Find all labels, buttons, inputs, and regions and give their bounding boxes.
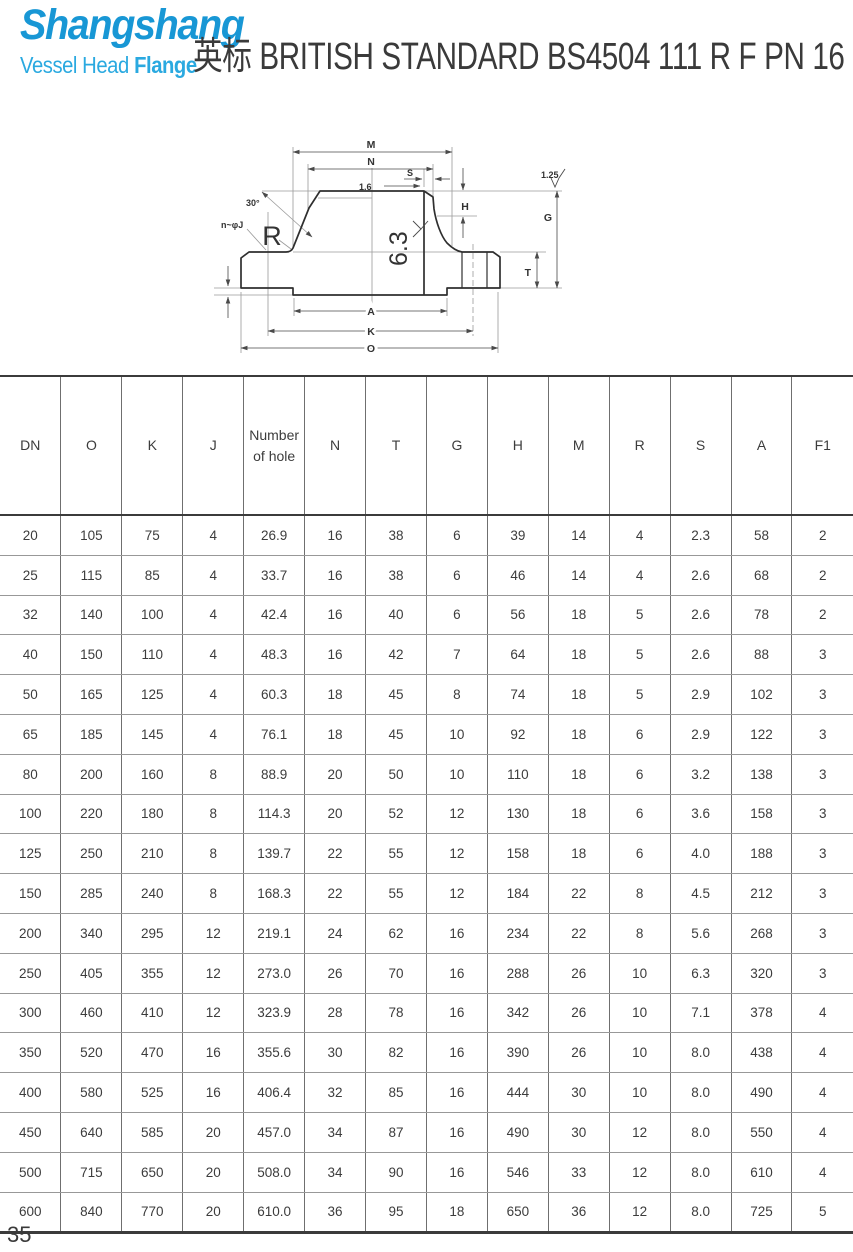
table-cell: 585 (122, 1112, 183, 1152)
table-cell: 110 (122, 635, 183, 675)
table-cell: 3 (792, 953, 853, 993)
table-cell: 56 (487, 595, 548, 635)
table-cell: 18 (548, 714, 609, 754)
header-cell-m: M (548, 376, 609, 515)
page-title: 英标 BRITISH STANDARD BS4504 111 R F PN 16 (193, 25, 845, 80)
table-cell: 4 (792, 1112, 853, 1152)
table-cell: 38 (366, 515, 427, 555)
table-cell: 82 (366, 1033, 427, 1073)
table-cell: 145 (122, 714, 183, 754)
table-cell: 610.0 (244, 1192, 305, 1233)
header-cell-f1: F1 (792, 376, 853, 515)
table-cell: 4 (609, 555, 670, 595)
header-cell-r: R (609, 376, 670, 515)
table-cell: 250 (61, 834, 122, 874)
table-cell: 26 (305, 953, 366, 993)
table-cell: 323.9 (244, 993, 305, 1033)
table-cell: 378 (731, 993, 792, 1033)
table-cell: 14 (548, 515, 609, 555)
table-cell: 10 (426, 754, 487, 794)
dim-label-H: H (461, 201, 469, 213)
table-cell: 5 (609, 635, 670, 675)
table-cell: 295 (122, 913, 183, 953)
table-cell: 4 (183, 595, 244, 635)
table-cell: 16 (426, 1033, 487, 1073)
table-cell: 4 (183, 555, 244, 595)
table-cell: 88.9 (244, 754, 305, 794)
table-cell: 34 (305, 1152, 366, 1192)
table-cell: 45 (366, 675, 427, 715)
table-cell: 16 (305, 595, 366, 635)
table-cell: 34 (305, 1112, 366, 1152)
table-cell: 125 (122, 675, 183, 715)
table-cell: 490 (731, 1073, 792, 1113)
table-cell: 184 (487, 874, 548, 914)
table-cell: 55 (366, 834, 427, 874)
dim-label-bolt-holes: n~φJ (221, 220, 243, 230)
table-cell: 18 (548, 635, 609, 675)
flange-cross-section-drawing: M N S 1.6 H G T A K O 30° n~φJ R 6.3 1.2… (195, 118, 580, 365)
roughness-value-bore: 6.3 (385, 231, 413, 266)
table-cell: 36 (305, 1192, 366, 1233)
table-cell: 10 (609, 953, 670, 993)
table-cell: 490 (487, 1112, 548, 1152)
table-cell: 125 (0, 834, 61, 874)
table-cell: 16 (426, 1073, 487, 1113)
table-cell: 55 (366, 874, 427, 914)
table-cell: 70 (366, 953, 427, 993)
table-row-dn-500: 50071565020508.034901654633128.06104 (0, 1152, 853, 1192)
table-cell: 40 (0, 635, 61, 675)
table-cell: 30 (548, 1112, 609, 1152)
table-cell: 28 (305, 993, 366, 1033)
table-cell: 220 (61, 794, 122, 834)
table-row-dn-100: 1002201808114.32052121301863.61583 (0, 794, 853, 834)
table-cell: 30 (548, 1073, 609, 1113)
table-cell: 240 (122, 874, 183, 914)
table-cell: 320 (731, 953, 792, 993)
table-cell: 650 (122, 1152, 183, 1192)
table-cell: 16 (183, 1073, 244, 1113)
table-cell: 12 (609, 1192, 670, 1233)
table-cell: 10 (609, 1073, 670, 1113)
dim-label-M: M (367, 139, 376, 151)
table-row-dn-300: 30046041012323.928781634226107.13784 (0, 993, 853, 1033)
table-cell: 470 (122, 1033, 183, 1073)
table-cell: 74 (487, 675, 548, 715)
table-cell: 18 (548, 595, 609, 635)
table-cell: 25 (0, 555, 61, 595)
table-cell: 4 (183, 714, 244, 754)
table-cell: 18 (548, 675, 609, 715)
table-cell: 5 (792, 1192, 853, 1233)
table-cell: 160 (122, 754, 183, 794)
table-cell: 7 (426, 635, 487, 675)
table-cell: 3 (792, 913, 853, 953)
table-cell: 4 (792, 1073, 853, 1113)
table-cell: 88 (731, 635, 792, 675)
table-cell: 105 (61, 515, 122, 555)
table-cell: 508.0 (244, 1152, 305, 1192)
table-cell: 2 (792, 555, 853, 595)
table-cell: 20 (0, 515, 61, 555)
dim-label-G: G (544, 212, 552, 224)
table-cell: 18 (548, 754, 609, 794)
table-cell: 210 (122, 834, 183, 874)
dim-label-A: A (367, 306, 375, 318)
spec-table-header: DNOKJNumberof holeNTGHMRSAF1 (0, 376, 853, 515)
table-cell: 4 (183, 675, 244, 715)
table-cell: 16 (305, 635, 366, 675)
table-cell: 32 (305, 1073, 366, 1113)
table-cell: 110 (487, 754, 548, 794)
table-cell: 12 (609, 1112, 670, 1152)
table-cell: 185 (61, 714, 122, 754)
table-cell: 20 (305, 794, 366, 834)
table-cell: 65 (0, 714, 61, 754)
table-cell: 6 (609, 794, 670, 834)
table-cell: 12 (183, 953, 244, 993)
table-cell: 18 (548, 794, 609, 834)
table-cell: 38 (366, 555, 427, 595)
table-cell: 4 (792, 1152, 853, 1192)
table-cell: 22 (548, 913, 609, 953)
table-cell: 450 (0, 1112, 61, 1152)
table-cell: 288 (487, 953, 548, 993)
table-cell: 12 (426, 834, 487, 874)
table-cell: 8.0 (670, 1112, 731, 1152)
table-cell: 5 (609, 675, 670, 715)
table-cell: 14 (548, 555, 609, 595)
table-cell: 24 (305, 913, 366, 953)
table-cell: 444 (487, 1073, 548, 1113)
table-cell: 50 (0, 675, 61, 715)
table-cell: 12 (183, 913, 244, 953)
table-cell: 68 (731, 555, 792, 595)
table-cell: 18 (305, 714, 366, 754)
table-cell: 36 (548, 1192, 609, 1233)
table-cell: 12 (426, 794, 487, 834)
table-cell: 340 (61, 913, 122, 953)
table-cell: 4 (183, 635, 244, 675)
table-cell: 18 (305, 675, 366, 715)
table-cell: 168.3 (244, 874, 305, 914)
table-cell: 3 (792, 794, 853, 834)
table-cell: 46 (487, 555, 548, 595)
table-cell: 6 (426, 515, 487, 555)
table-cell: 16 (426, 913, 487, 953)
table-row-dn-50: 50165125460.318458741852.91023 (0, 675, 853, 715)
table-cell: 8 (426, 675, 487, 715)
table-cell: 8 (183, 794, 244, 834)
table-cell: 7.1 (670, 993, 731, 1033)
table-cell: 16 (183, 1033, 244, 1073)
header-cell-number-of-hole: Numberof hole (244, 376, 305, 515)
table-cell: 212 (731, 874, 792, 914)
table-cell: 102 (731, 675, 792, 715)
table-cell: 90 (366, 1152, 427, 1192)
table-cell: 26.9 (244, 515, 305, 555)
brand-subtitle: Vessel HeadFlange (20, 54, 178, 77)
header-cell-h: H (487, 376, 548, 515)
table-cell: 6 (609, 714, 670, 754)
table-cell: 165 (61, 675, 122, 715)
table-cell: 610 (731, 1152, 792, 1192)
table-cell: 16 (305, 555, 366, 595)
table-cell: 85 (366, 1073, 427, 1113)
table-cell: 300 (0, 993, 61, 1033)
table-row-dn-80: 80200160888.92050101101863.21383 (0, 754, 853, 794)
table-cell: 390 (487, 1033, 548, 1073)
table-cell: 26 (548, 993, 609, 1033)
table-cell: 30 (305, 1033, 366, 1073)
header-cell-g: G (426, 376, 487, 515)
table-cell: 273.0 (244, 953, 305, 993)
table-cell: 4 (792, 1033, 853, 1073)
table-cell: 42.4 (244, 595, 305, 635)
header-cell-o: O (61, 376, 122, 515)
table-cell: 18 (426, 1192, 487, 1233)
table-cell: 2.6 (670, 595, 731, 635)
table-cell: 4 (609, 515, 670, 555)
table-cell: 150 (0, 874, 61, 914)
table-cell: 76.1 (244, 714, 305, 754)
table-cell: 32 (0, 595, 61, 635)
table-cell: 3 (792, 754, 853, 794)
table-row-dn-250: 25040535512273.026701628826106.33203 (0, 953, 853, 993)
dim-label-1-6: 1.6 (359, 182, 372, 192)
table-cell: 12 (609, 1152, 670, 1192)
catalog-page: Shangshang Vessel HeadFlange 英标 BRITISH … (0, 0, 853, 1252)
table-cell: 8.0 (670, 1192, 731, 1233)
table-cell: 138 (731, 754, 792, 794)
table-cell: 8.0 (670, 1033, 731, 1073)
table-row-dn-32: 32140100442.416406561852.6782 (0, 595, 853, 635)
table-cell: 2 (792, 515, 853, 555)
table-cell: 139.7 (244, 834, 305, 874)
dim-label-O: O (367, 343, 375, 355)
table-cell: 550 (731, 1112, 792, 1152)
table-cell: 20 (183, 1112, 244, 1152)
table-cell: 114.3 (244, 794, 305, 834)
table-cell: 355 (122, 953, 183, 993)
table-cell: 8.0 (670, 1073, 731, 1113)
table-cell: 285 (61, 874, 122, 914)
header-cell-dn: DN (0, 376, 61, 515)
table-row-dn-600: 60084077020610.036951865036128.07255 (0, 1192, 853, 1233)
table-cell: 410 (122, 993, 183, 1033)
table-cell: 20 (305, 754, 366, 794)
table-cell: 22 (548, 874, 609, 914)
table-cell: 725 (731, 1192, 792, 1233)
table-cell: 140 (61, 595, 122, 635)
table-cell: 200 (61, 754, 122, 794)
table-cell: 33.7 (244, 555, 305, 595)
table-cell: 10 (609, 1033, 670, 1073)
table-cell: 95 (366, 1192, 427, 1233)
table-cell: 8 (609, 913, 670, 953)
table-cell: 3.6 (670, 794, 731, 834)
table-cell: 188 (731, 834, 792, 874)
table-cell: 122 (731, 714, 792, 754)
table-cell: 64 (487, 635, 548, 675)
table-cell: 18 (548, 834, 609, 874)
table-cell: 8.0 (670, 1152, 731, 1192)
dim-label-radius: R (262, 221, 282, 251)
table-cell: 500 (0, 1152, 61, 1192)
table-cell: 150 (61, 635, 122, 675)
table-cell: 460 (61, 993, 122, 1033)
table-cell: 12 (426, 874, 487, 914)
table-cell: 4 (792, 993, 853, 1033)
table-cell: 16 (305, 515, 366, 555)
table-cell: 158 (487, 834, 548, 874)
table-cell: 180 (122, 794, 183, 834)
table-cell: 520 (61, 1033, 122, 1073)
table-row-dn-450: 45064058520457.034871649030128.05504 (0, 1112, 853, 1152)
table-cell: 12 (183, 993, 244, 1033)
table-cell: 650 (487, 1192, 548, 1233)
table-row-dn-25: 2511585433.716386461442.6682 (0, 555, 853, 595)
table-cell: 546 (487, 1152, 548, 1192)
table-cell: 5.6 (670, 913, 731, 953)
table-cell: 16 (426, 953, 487, 993)
table-cell: 115 (61, 555, 122, 595)
table-cell: 26 (548, 953, 609, 993)
table-cell: 16 (426, 1112, 487, 1152)
table-cell: 3 (792, 714, 853, 754)
table-cell: 33 (548, 1152, 609, 1192)
table-cell: 405 (61, 953, 122, 993)
table-cell: 400 (0, 1073, 61, 1113)
table-cell: 4.5 (670, 874, 731, 914)
table-row-dn-20: 2010575426.916386391442.3582 (0, 515, 853, 555)
brand-subtitle-vessel-head: Vessel Head (20, 52, 129, 78)
table-cell: 457.0 (244, 1112, 305, 1152)
table-cell: 6 (609, 754, 670, 794)
brand-name: Shangshang (20, 4, 186, 47)
table-cell: 219.1 (244, 913, 305, 953)
table-cell: 42 (366, 635, 427, 675)
logo: Shangshang Vessel HeadFlange (20, 4, 200, 77)
header-cell-t: T (366, 376, 427, 515)
table-cell: 2.3 (670, 515, 731, 555)
header-cell-k: K (122, 376, 183, 515)
table-cell: 2.9 (670, 675, 731, 715)
table-cell: 78 (366, 993, 427, 1033)
table-cell: 26 (548, 1033, 609, 1073)
table-cell: 234 (487, 913, 548, 953)
table-cell: 62 (366, 913, 427, 953)
table-row-dn-350: 35052047016355.630821639026108.04384 (0, 1033, 853, 1073)
table-cell: 268 (731, 913, 792, 953)
table-cell: 87 (366, 1112, 427, 1152)
table-cell: 48.3 (244, 635, 305, 675)
table-cell: 92 (487, 714, 548, 754)
header-cell-a: A (731, 376, 792, 515)
table-row-dn-400: 40058052516406.432851644430108.04904 (0, 1073, 853, 1113)
table-cell: 4.0 (670, 834, 731, 874)
table-cell: 3 (792, 874, 853, 914)
dim-label-S: S (407, 168, 413, 178)
table-cell: 2.6 (670, 555, 731, 595)
table-cell: 8 (183, 834, 244, 874)
table-row-dn-65: 65185145476.1184510921862.91223 (0, 714, 853, 754)
table-cell: 8 (183, 754, 244, 794)
table-cell: 39 (487, 515, 548, 555)
table-cell: 75 (122, 515, 183, 555)
spec-table: DNOKJNumberof holeNTGHMRSAF1 2010575426.… (0, 375, 853, 1234)
table-cell: 6 (426, 595, 487, 635)
table-cell: 6 (426, 555, 487, 595)
table-cell: 640 (61, 1112, 122, 1152)
dim-label-K: K (367, 326, 375, 338)
roughness-symbol-bore-icon (413, 221, 428, 237)
table-cell: 100 (122, 595, 183, 635)
table-cell: 350 (0, 1033, 61, 1073)
dim-label-N: N (367, 156, 375, 168)
table-cell: 770 (122, 1192, 183, 1233)
table-cell: 2 (792, 595, 853, 635)
table-cell: 22 (305, 834, 366, 874)
table-cell: 58 (731, 515, 792, 555)
table-cell: 2.9 (670, 714, 731, 754)
table-cell: 3 (792, 834, 853, 874)
table-cell: 250 (0, 953, 61, 993)
page-number: 35 (7, 1222, 31, 1248)
table-cell: 3.2 (670, 754, 731, 794)
table-cell: 20 (183, 1192, 244, 1233)
table-cell: 525 (122, 1073, 183, 1113)
table-cell: 8 (183, 874, 244, 914)
dim-label-angle: 30° (246, 198, 260, 208)
header-cell-s: S (670, 376, 731, 515)
header-cell-n: N (305, 376, 366, 515)
table-cell: 78 (731, 595, 792, 635)
table-row-dn-125: 1252502108139.72255121581864.01883 (0, 834, 853, 874)
table-cell: 60.3 (244, 675, 305, 715)
table-cell: 16 (426, 1152, 487, 1192)
table-row-dn-200: 20034029512219.12462162342285.62683 (0, 913, 853, 953)
table-cell: 355.6 (244, 1033, 305, 1073)
table-cell: 6.3 (670, 953, 731, 993)
table-cell: 840 (61, 1192, 122, 1233)
table-cell: 438 (731, 1033, 792, 1073)
table-cell: 40 (366, 595, 427, 635)
table-cell: 45 (366, 714, 427, 754)
roughness-value-face: 1.25 (541, 170, 559, 180)
table-cell: 20 (183, 1152, 244, 1192)
table-row-dn-40: 40150110448.316427641852.6883 (0, 635, 853, 675)
header-cell-j: J (183, 376, 244, 515)
table-cell: 8 (609, 874, 670, 914)
table-cell: 10 (609, 993, 670, 1033)
table-cell: 342 (487, 993, 548, 1033)
table-cell: 406.4 (244, 1073, 305, 1113)
table-cell: 158 (731, 794, 792, 834)
table-cell: 3 (792, 635, 853, 675)
table-cell: 22 (305, 874, 366, 914)
table-cell: 715 (61, 1152, 122, 1192)
table-cell: 16 (426, 993, 487, 1033)
table-cell: 10 (426, 714, 487, 754)
table-cell: 6 (609, 834, 670, 874)
table-cell: 80 (0, 754, 61, 794)
table-cell: 5 (609, 595, 670, 635)
table-row-dn-150: 1502852408168.32255121842284.52123 (0, 874, 853, 914)
table-cell: 50 (366, 754, 427, 794)
table-cell: 85 (122, 555, 183, 595)
